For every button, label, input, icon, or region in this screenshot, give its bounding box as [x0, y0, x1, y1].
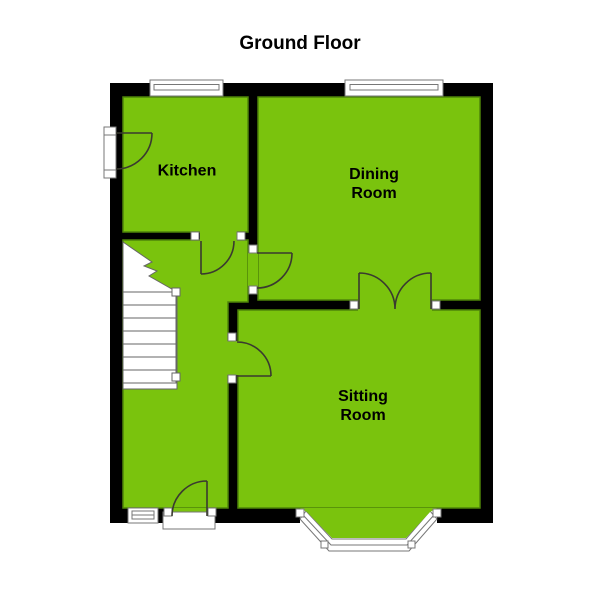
kitchen-door-opening	[200, 231, 237, 242]
room-label-kitchen: Kitchen	[158, 162, 217, 181]
jamb	[208, 508, 216, 516]
jamb	[350, 301, 358, 309]
bay-window	[300, 508, 437, 551]
sitting-door-opening	[227, 341, 239, 375]
floor-plan: Ground Floor Kitchen Dining Room Sitting…	[0, 0, 600, 600]
dining-door-opening	[248, 253, 258, 286]
side-door-frame	[104, 127, 116, 178]
kitchen-window	[150, 80, 223, 96]
page-title: Ground Floor	[0, 33, 600, 55]
kitchen-window-frame	[150, 80, 223, 96]
jamb	[296, 509, 304, 517]
jamb	[228, 333, 236, 341]
bay-mullion-right	[408, 541, 415, 548]
jamb	[432, 301, 440, 309]
hall-small-window	[128, 508, 158, 523]
jamb	[237, 232, 245, 240]
room-label-dining: Dining Room	[349, 165, 399, 203]
bay-mullion-left	[321, 541, 328, 548]
jamb	[191, 232, 199, 240]
jamb	[249, 286, 257, 294]
jamb	[249, 245, 257, 253]
dining-window-frame	[345, 80, 443, 96]
room-label-sitting: Sitting Room	[338, 387, 388, 425]
stair-newel-top	[172, 288, 180, 296]
dining-window	[345, 80, 443, 96]
floor-plan-drawing	[0, 0, 600, 600]
stair-newel-bottom	[172, 373, 180, 381]
jamb	[164, 508, 172, 516]
jamb	[433, 509, 441, 517]
jamb	[228, 375, 236, 383]
